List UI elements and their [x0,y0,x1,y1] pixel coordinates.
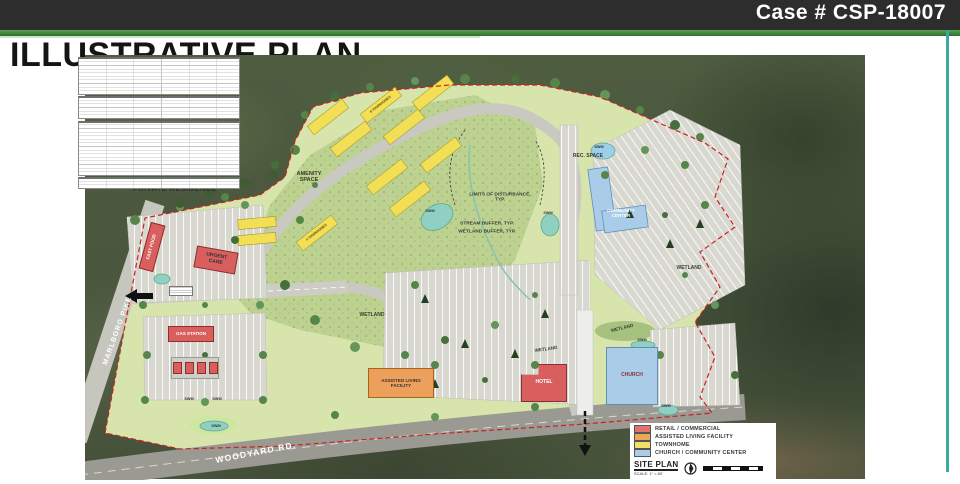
legend-row-retail: RETAIL / COMMERCIAL [634,425,772,433]
building-hotel: HOTEL [521,364,567,402]
fuel-pump [209,362,218,374]
legend-label-assisted-living: ASSISTED LIVING FACILITY [655,434,733,440]
label-swm: SWM [211,424,220,428]
label-swm: SWM [184,397,193,401]
legend-label-church: CHURCH / COMMUNITY CENTER [655,450,746,456]
legend-row-church: CHURCH / COMMUNITY CENTER [634,449,772,457]
label-rec-space: REC. SPACE [573,154,603,160]
legend-swatch-assisted-living [634,433,651,441]
legend-swatch-retail [634,425,651,433]
building-fast-food: FAST FOOD [139,222,166,272]
building-community-center-label: COMMUNITY CENTER [601,208,641,218]
label-amenity-space: AMENITY SPACE [293,171,325,183]
legend-label-retail: RETAIL / COMMERCIAL [655,426,721,432]
teal-accent-line [946,30,949,472]
label-swm: SWM [543,211,552,215]
building-assisted-living: ASSISTED LIVING FACILITY [368,368,434,398]
legend-swatch-church [634,449,651,457]
building-church-label: CHURCH [621,373,643,378]
label-swm: SWM [637,338,646,342]
building-hotel-label: HOTEL [536,380,553,385]
label-townhomes: 4 TOWNHOMES [306,224,328,243]
site-plan-scale: SCALE: 1" = 80' [634,471,678,476]
site-plan-block: SITE PLAN SCALE: 1" = 80' [634,460,772,476]
road-label-marlboro-pike: MARLBORO PIKE [102,296,134,367]
fuel-pump [197,362,206,374]
label-wetland: WETLAND [610,323,634,334]
building-church: CHURCH [606,347,658,405]
label-wetland-buffer: WETLAND BUFFER, TYP. [458,229,515,234]
building-urgent-care: URGENT CARE [193,246,238,275]
label-wetland: WETLAND [360,313,385,319]
building-assisted-living-label: ASSISTED LIVING FACILITY [381,378,421,388]
legend-swatch-townhome [634,441,651,449]
label-swm: SWM [425,209,434,213]
building-gas-station-label: GAS STATION [176,332,206,337]
site-data-table-2 [78,96,240,119]
legend-row-assisted-living: ASSISTED LIVING FACILITY [634,433,772,441]
label-swm: SWM [594,145,603,149]
north-compass-icon [684,462,697,475]
label-wetland: WETLAND [677,266,702,272]
site-data-table-1 [78,57,240,95]
label-townhomes: 8 TOWNHOMES [370,96,392,115]
building-urgent-care-label: URGENT CARE [202,252,230,268]
building-fast-food-label: FAST FOOD [146,234,157,260]
site-plan-title: SITE PLAN [634,460,678,471]
legend-row-townhome: TOWNHOME [634,441,772,449]
gas-canopy [171,357,219,379]
fuel-pump [173,362,182,374]
case-number: Case # CSP-18007 [756,1,946,25]
building-gas-station: GAS STATION [168,326,214,342]
legend-label-townhome: TOWNHOME [655,442,690,448]
slide: Case # CSP-18007 ILLUSTRATIVE PLAN [0,0,960,484]
label-stream-buffer: STREAM BUFFER, TYP. [460,221,514,226]
site-data-table-4 [78,177,240,189]
fuel-pump [185,362,194,374]
site-data-table-3 [78,121,240,176]
label-swm: SWM [661,404,670,408]
label-swm: SWM [212,397,221,401]
legend: RETAIL / COMMERCIAL ASSISTED LIVING FACI… [630,423,776,479]
top-banner: Case # CSP-18007 [0,0,960,30]
road-label-woodyard-rd: WOODYARD RD. [215,440,297,465]
street-label [169,286,193,296]
scale-bar [703,466,763,471]
label-wetland: WETLAND [534,345,557,353]
label-limits-of-disturbance: LIMITS OF DISTURBANCE, TYP. [469,193,531,204]
